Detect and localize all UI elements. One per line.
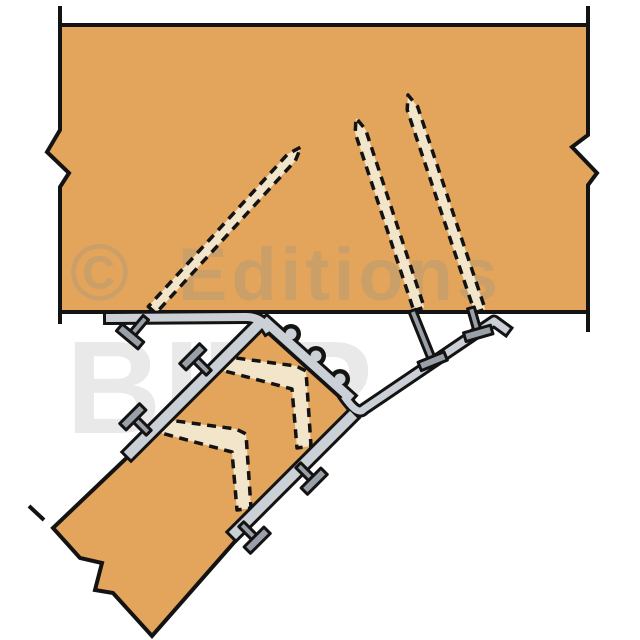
construction-detail-illustration: © Editions BILP <box>0 0 640 640</box>
scallop-bump <box>335 374 346 385</box>
joist-hanger-diagram: © Editions BILP <box>0 0 640 640</box>
watermark-copyright-icon: © <box>70 228 129 317</box>
scallop-bump <box>311 351 322 362</box>
scallop-bump <box>286 329 297 340</box>
